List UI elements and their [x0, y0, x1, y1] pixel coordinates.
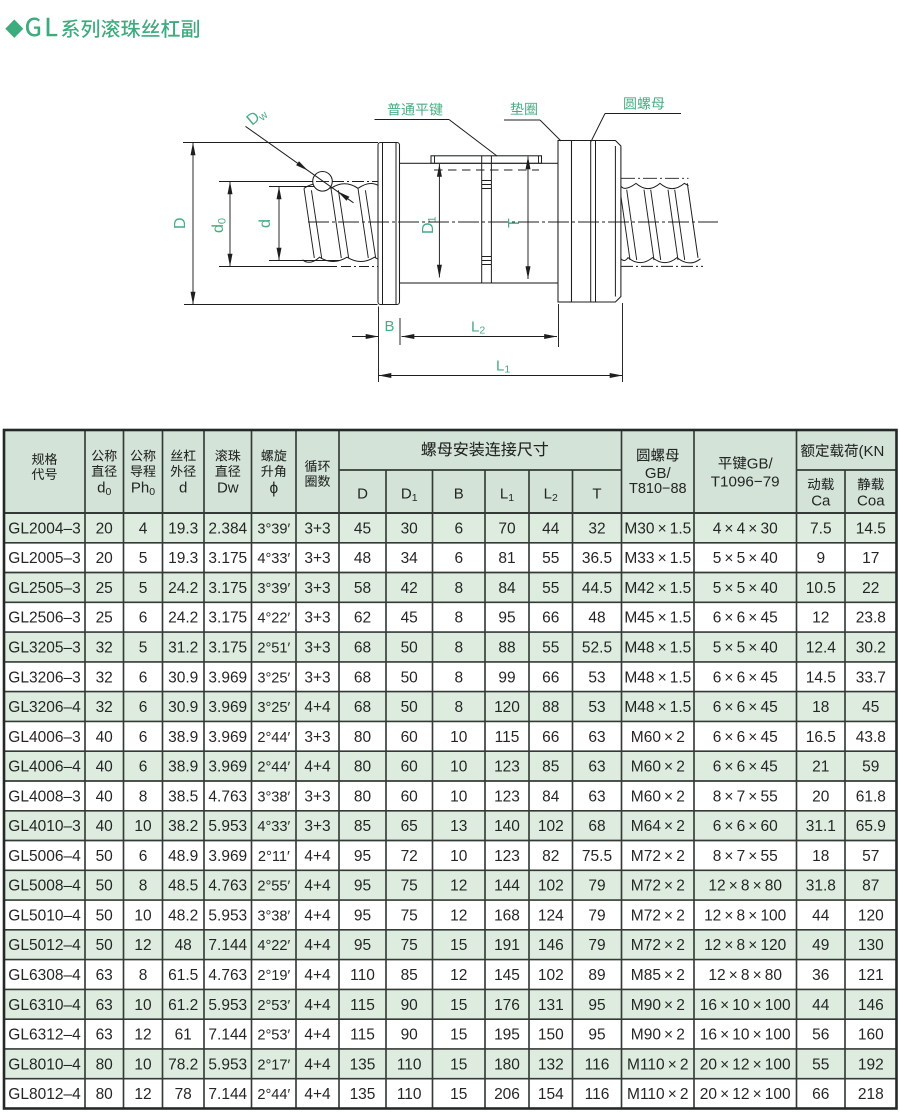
svg-text:12: 12: [450, 908, 467, 925]
svg-text:5 × 5 × 40: 5 × 5 × 40: [713, 550, 778, 567]
svg-text:30.9: 30.9: [168, 699, 198, 716]
svg-text:52.5: 52.5: [582, 640, 612, 657]
svg-text:48.9: 48.9: [168, 848, 198, 865]
svg-text:102: 102: [538, 967, 564, 984]
svg-text:4+4: 4+4: [304, 878, 331, 895]
svg-text:95: 95: [588, 997, 605, 1014]
svg-text:Dw: Dw: [217, 479, 239, 496]
svg-text:12: 12: [134, 937, 151, 954]
svg-text:90: 90: [401, 1027, 419, 1044]
svg-text:84: 84: [542, 788, 560, 805]
svg-text:10: 10: [450, 848, 468, 865]
svg-text:3.175: 3.175: [208, 580, 247, 597]
svg-text:2°19′: 2°19′: [257, 968, 290, 984]
svg-text:4+4: 4+4: [304, 1086, 331, 1103]
svg-text:2°44′: 2°44′: [257, 730, 290, 746]
svg-text:M48 × 1.5: M48 × 1.5: [624, 669, 691, 686]
svg-text:19.3: 19.3: [168, 550, 198, 567]
svg-text:25: 25: [96, 610, 113, 627]
svg-text:3°38′: 3°38′: [257, 789, 290, 805]
svg-text:20: 20: [812, 788, 830, 805]
svg-text:3+3: 3+3: [304, 580, 330, 597]
svg-text:44.5: 44.5: [582, 580, 612, 597]
svg-text:33.7: 33.7: [856, 669, 886, 686]
svg-text:144: 144: [494, 878, 520, 895]
svg-text:80: 80: [354, 788, 372, 805]
svg-text:145: 145: [494, 967, 520, 984]
svg-text:38.2: 38.2: [168, 818, 198, 835]
svg-text:17: 17: [862, 550, 879, 567]
svg-text:D: D: [172, 217, 189, 229]
svg-text:8: 8: [139, 788, 148, 805]
svg-text:20: 20: [96, 550, 114, 567]
svg-text:8: 8: [454, 610, 463, 627]
svg-text:140: 140: [494, 818, 520, 835]
svg-text:31.8: 31.8: [806, 878, 836, 895]
svg-text:4+4: 4+4: [304, 908, 331, 925]
svg-text:66: 66: [812, 1086, 829, 1103]
svg-text:68: 68: [354, 699, 371, 716]
svg-text:168: 168: [494, 908, 520, 925]
svg-text:120: 120: [858, 908, 884, 925]
svg-text:116: 116: [585, 1086, 610, 1103]
svg-text:15: 15: [450, 1056, 467, 1073]
svg-text:GL5006–4: GL5006–4: [8, 848, 81, 865]
svg-text:45: 45: [401, 610, 418, 627]
svg-text:6: 6: [454, 520, 463, 537]
svg-text:206: 206: [494, 1086, 520, 1103]
svg-text:M45 × 1.5: M45 × 1.5: [624, 610, 691, 627]
svg-text:79: 79: [588, 908, 605, 925]
svg-text:102: 102: [538, 818, 564, 835]
svg-text:38.9: 38.9: [168, 759, 198, 776]
svg-text:30: 30: [401, 520, 419, 537]
svg-text:M60 × 2: M60 × 2: [631, 759, 685, 776]
svg-text:GL4010–3: GL4010–3: [8, 818, 80, 835]
svg-text:53: 53: [588, 699, 605, 716]
svg-text:M42 × 1.5: M42 × 1.5: [624, 580, 691, 597]
svg-text:(KN: (KN: [859, 443, 885, 460]
svg-text:68: 68: [588, 818, 605, 835]
svg-text:40: 40: [96, 759, 114, 776]
svg-text:13: 13: [450, 818, 467, 835]
svg-text:GL4008–3: GL4008–3: [8, 788, 80, 805]
svg-text:60: 60: [401, 759, 419, 776]
svg-text:Coa: Coa: [857, 492, 885, 509]
svg-text:61.2: 61.2: [168, 997, 198, 1014]
svg-text:2.384: 2.384: [208, 520, 247, 537]
svg-text:3+3: 3+3: [304, 788, 330, 805]
svg-text:4°33′: 4°33′: [257, 819, 290, 835]
svg-text:123: 123: [494, 848, 520, 865]
svg-text:61.5: 61.5: [168, 967, 198, 984]
svg-text:GL5012–4: GL5012–4: [8, 937, 81, 954]
svg-text:84: 84: [498, 580, 516, 597]
svg-text:85: 85: [354, 818, 371, 835]
svg-text:132: 132: [538, 1056, 564, 1073]
svg-text:T: T: [506, 218, 523, 228]
svg-text:44: 44: [812, 997, 830, 1014]
svg-text:81: 81: [498, 550, 515, 567]
svg-text:123: 123: [494, 788, 520, 805]
svg-text:120: 120: [494, 699, 520, 716]
svg-text:M90 × 2: M90 × 2: [631, 997, 685, 1014]
svg-text:48.5: 48.5: [168, 878, 198, 895]
svg-text:4 × 4 × 30: 4 × 4 × 30: [713, 520, 778, 537]
svg-text:75: 75: [401, 908, 418, 925]
svg-text:12: 12: [812, 610, 829, 627]
svg-text:36: 36: [812, 967, 829, 984]
svg-text:M48 × 1.5: M48 × 1.5: [624, 640, 691, 657]
svg-text:79: 79: [588, 937, 605, 954]
svg-text:15: 15: [450, 1086, 467, 1103]
svg-text:GL4006–4: GL4006–4: [8, 759, 81, 776]
svg-text:M33 × 1.5: M33 × 1.5: [624, 550, 691, 567]
svg-text:43.8: 43.8: [856, 729, 886, 746]
svg-text:20 × 12 × 100: 20 × 12 × 100: [700, 1056, 791, 1073]
svg-text:38.9: 38.9: [168, 729, 198, 746]
svg-text:5.953: 5.953: [208, 1056, 247, 1073]
svg-text:GL2505–3: GL2505–3: [8, 580, 80, 597]
svg-text:31.2: 31.2: [168, 640, 198, 657]
svg-text:7.144: 7.144: [208, 1086, 247, 1103]
svg-text:3.175: 3.175: [208, 640, 247, 657]
svg-text:8: 8: [139, 878, 148, 895]
svg-text:90: 90: [401, 997, 419, 1014]
svg-text:12: 12: [450, 878, 467, 895]
svg-text:75: 75: [401, 878, 418, 895]
svg-text:154: 154: [538, 1086, 564, 1103]
svg-text:3°39′: 3°39′: [257, 581, 290, 597]
svg-text:99: 99: [498, 669, 515, 686]
svg-text:GL6310–4: GL6310–4: [8, 997, 81, 1014]
svg-text:32: 32: [96, 669, 113, 686]
svg-text:15: 15: [450, 937, 467, 954]
svg-text:4+4: 4+4: [304, 699, 331, 716]
svg-text:63: 63: [588, 788, 605, 805]
svg-text:9: 9: [816, 550, 825, 567]
svg-text:M85 × 2: M85 × 2: [631, 967, 685, 984]
svg-text:6: 6: [139, 699, 148, 716]
svg-text:GL2005–3: GL2005–3: [8, 550, 80, 567]
svg-text:6 × 6 × 60: 6 × 6 × 60: [713, 818, 778, 835]
svg-text:115: 115: [350, 1027, 375, 1044]
svg-text:M72 × 2: M72 × 2: [631, 937, 685, 954]
svg-text:15: 15: [450, 997, 467, 1014]
svg-text:4°33′: 4°33′: [257, 551, 290, 567]
svg-text:49: 49: [812, 937, 829, 954]
svg-text:131: 131: [538, 997, 564, 1014]
svg-text:6 × 6 × 45: 6 × 6 × 45: [713, 699, 778, 716]
svg-text:4°22′: 4°22′: [257, 938, 290, 954]
svg-text:66: 66: [542, 669, 559, 686]
svg-text:6 × 6 × 45: 6 × 6 × 45: [713, 729, 778, 746]
svg-text:2°53′: 2°53′: [257, 1028, 290, 1044]
svg-text:68: 68: [354, 640, 371, 657]
svg-text:56: 56: [812, 1027, 829, 1044]
svg-text:8: 8: [139, 967, 148, 984]
svg-text:44: 44: [542, 520, 560, 537]
svg-text:32: 32: [96, 699, 113, 716]
svg-text:95: 95: [354, 908, 371, 925]
svg-text:95: 95: [354, 937, 371, 954]
svg-text:146: 146: [858, 997, 884, 1014]
svg-text:89: 89: [588, 967, 605, 984]
svg-text:180: 180: [494, 1056, 520, 1073]
svg-text:GL3205–3: GL3205–3: [8, 640, 80, 657]
svg-text:66: 66: [542, 729, 559, 746]
svg-text:25: 25: [96, 580, 113, 597]
svg-text:80: 80: [354, 729, 372, 746]
svg-text:20: 20: [96, 520, 114, 537]
svg-text:6 × 6 × 45: 6 × 6 × 45: [713, 610, 778, 627]
svg-text:10: 10: [134, 818, 152, 835]
svg-text:3+3: 3+3: [304, 610, 330, 627]
svg-text:7.144: 7.144: [208, 937, 247, 954]
svg-text:3°38′: 3°38′: [257, 909, 290, 925]
svg-text:3+3: 3+3: [304, 669, 330, 686]
svg-text:40: 40: [96, 729, 114, 746]
svg-text:23.8: 23.8: [856, 610, 886, 627]
svg-text:M72 × 2: M72 × 2: [631, 908, 685, 925]
svg-text:4+4: 4+4: [304, 1056, 331, 1073]
svg-text:88: 88: [542, 699, 559, 716]
svg-text:14.5: 14.5: [806, 669, 836, 686]
svg-text:62: 62: [354, 610, 371, 627]
svg-text:5: 5: [139, 550, 148, 567]
svg-text:T1096−79: T1096−79: [711, 473, 780, 490]
svg-text:GL4006–3: GL4006–3: [8, 729, 80, 746]
svg-text:M110 × 2: M110 × 2: [627, 1056, 689, 1073]
svg-text:3.969: 3.969: [208, 848, 247, 865]
svg-text:5.953: 5.953: [208, 818, 247, 835]
svg-text:4: 4: [139, 520, 148, 537]
svg-text:4+4: 4+4: [304, 1027, 331, 1044]
svg-text:10: 10: [450, 788, 468, 805]
svg-text:82: 82: [542, 848, 559, 865]
svg-text:72: 72: [401, 848, 418, 865]
svg-text:2°53′: 2°53′: [257, 998, 290, 1014]
svg-text:3+3: 3+3: [304, 818, 330, 835]
svg-text:79: 79: [588, 878, 605, 895]
svg-text:6 × 6 × 45: 6 × 6 × 45: [713, 759, 778, 776]
svg-text:3.969: 3.969: [208, 759, 247, 776]
svg-text:75.5: 75.5: [582, 848, 612, 865]
svg-text:40: 40: [96, 818, 114, 835]
svg-text:3+3: 3+3: [304, 520, 330, 537]
svg-text:d: d: [257, 219, 274, 228]
svg-text:78: 78: [175, 1086, 192, 1103]
svg-text:78.2: 78.2: [168, 1056, 198, 1073]
svg-text:4°22′: 4°22′: [257, 611, 290, 627]
svg-text:8: 8: [454, 699, 463, 716]
svg-text:44: 44: [812, 908, 830, 925]
svg-text:3°39′: 3°39′: [257, 521, 290, 537]
svg-text:34: 34: [401, 550, 419, 567]
svg-text:42: 42: [401, 580, 418, 597]
svg-text:176: 176: [494, 997, 520, 1014]
svg-text:M64 × 2: M64 × 2: [631, 818, 685, 835]
svg-text:63: 63: [96, 1027, 113, 1044]
svg-text:12.4: 12.4: [806, 640, 837, 657]
svg-text:24.2: 24.2: [168, 580, 198, 597]
svg-text:22: 22: [862, 580, 879, 597]
svg-text:102: 102: [538, 878, 564, 895]
svg-text:3+3: 3+3: [304, 550, 330, 567]
svg-text:6: 6: [139, 729, 148, 746]
svg-text:192: 192: [858, 1056, 884, 1073]
svg-text:48: 48: [175, 937, 192, 954]
svg-text:GB/: GB/: [645, 465, 672, 482]
svg-text:B: B: [384, 318, 394, 335]
svg-text:2°44′: 2°44′: [257, 1087, 290, 1103]
svg-text:D: D: [357, 485, 368, 502]
svg-text:32: 32: [588, 520, 605, 537]
svg-text:16 × 10 × 100: 16 × 10 × 100: [700, 1027, 791, 1044]
svg-text:55: 55: [542, 580, 559, 597]
svg-text:68: 68: [354, 669, 371, 686]
svg-text:12 × 8 × 80: 12 × 8 × 80: [708, 878, 782, 895]
svg-text:50: 50: [96, 908, 114, 925]
svg-text:8: 8: [454, 580, 463, 597]
svg-text:66: 66: [542, 610, 559, 627]
svg-text:30.2: 30.2: [856, 640, 886, 657]
svg-text:B: B: [454, 485, 464, 502]
svg-text:50: 50: [96, 848, 114, 865]
svg-text:GB/: GB/: [747, 455, 774, 472]
svg-text:8: 8: [454, 669, 463, 686]
svg-text:21: 21: [812, 759, 829, 776]
svg-text:48: 48: [588, 610, 605, 627]
svg-text:GL2004–3: GL2004–3: [8, 520, 80, 537]
svg-text:191: 191: [494, 937, 520, 954]
svg-text:61.8: 61.8: [856, 788, 886, 805]
svg-text:95: 95: [354, 878, 371, 895]
svg-text:80: 80: [354, 759, 372, 776]
svg-text:7.5: 7.5: [810, 520, 832, 537]
svg-text:GL8012–4: GL8012–4: [8, 1086, 81, 1103]
svg-text:45: 45: [354, 520, 371, 537]
svg-text:10: 10: [134, 1056, 152, 1073]
svg-text:M48 × 1.5: M48 × 1.5: [624, 699, 691, 716]
svg-text:GL3206–4: GL3206–4: [8, 699, 81, 716]
svg-text:115: 115: [350, 997, 375, 1014]
svg-text:57: 57: [862, 848, 879, 865]
svg-text:6 × 6 × 45: 6 × 6 × 45: [713, 669, 778, 686]
svg-text:GL5008–4: GL5008–4: [8, 878, 81, 895]
svg-text:110: 110: [397, 1086, 422, 1103]
svg-text:8: 8: [454, 640, 463, 657]
svg-text:3°25′: 3°25′: [257, 670, 290, 686]
svg-text:110: 110: [397, 1056, 422, 1073]
svg-text:130: 130: [858, 937, 884, 954]
svg-text:38.5: 38.5: [168, 788, 198, 805]
svg-text:GL5010–4: GL5010–4: [8, 908, 81, 925]
svg-text:5.953: 5.953: [208, 997, 247, 1014]
svg-text:195: 195: [494, 1027, 520, 1044]
svg-text:M110 × 2: M110 × 2: [627, 1086, 689, 1103]
svg-text:2°44′: 2°44′: [257, 760, 290, 776]
svg-text:10: 10: [134, 908, 152, 925]
svg-text:M60 × 2: M60 × 2: [631, 788, 685, 805]
svg-text:30.9: 30.9: [168, 669, 198, 686]
svg-text:59: 59: [862, 759, 879, 776]
svg-text:4+4: 4+4: [304, 848, 331, 865]
svg-text:12: 12: [134, 1027, 151, 1044]
svg-text:M72 × 2: M72 × 2: [631, 848, 685, 865]
svg-text:61: 61: [175, 1027, 192, 1044]
svg-text:95: 95: [498, 610, 515, 627]
svg-text:4+4: 4+4: [304, 759, 331, 776]
svg-text:6: 6: [139, 759, 148, 776]
svg-text:19.3: 19.3: [168, 520, 198, 537]
svg-text:135: 135: [350, 1086, 376, 1103]
svg-text:6: 6: [139, 669, 148, 686]
svg-text:55: 55: [812, 1056, 829, 1073]
svg-text:GL8010–4: GL8010–4: [8, 1056, 81, 1073]
svg-text:48.2: 48.2: [168, 908, 198, 925]
svg-text:12: 12: [450, 967, 467, 984]
svg-text:50: 50: [401, 699, 419, 716]
svg-text:110: 110: [350, 967, 375, 984]
svg-text:10.5: 10.5: [806, 580, 836, 597]
svg-text:2°17′: 2°17′: [257, 1057, 290, 1073]
svg-text:10: 10: [450, 759, 468, 776]
svg-text:32: 32: [96, 640, 113, 657]
svg-text:3.969: 3.969: [208, 699, 247, 716]
svg-text:15: 15: [450, 1027, 467, 1044]
svg-text:4.763: 4.763: [208, 788, 247, 805]
svg-text:50: 50: [401, 640, 419, 657]
svg-text:87: 87: [862, 878, 879, 895]
svg-text:M72 × 2: M72 × 2: [631, 878, 685, 895]
svg-text:4.763: 4.763: [208, 878, 247, 895]
svg-text:4.763: 4.763: [208, 967, 247, 984]
svg-text:6: 6: [454, 550, 463, 567]
svg-text:63: 63: [96, 997, 113, 1014]
svg-text:70: 70: [498, 520, 516, 537]
svg-text:4+4: 4+4: [304, 997, 331, 1014]
svg-text:3+3: 3+3: [304, 640, 330, 657]
svg-text:150: 150: [538, 1027, 564, 1044]
svg-text:65: 65: [401, 818, 418, 835]
svg-text:T: T: [592, 485, 601, 502]
svg-text:GL6312–4: GL6312–4: [8, 1027, 81, 1044]
svg-text:12 × 8 × 120: 12 × 8 × 120: [704, 937, 787, 954]
svg-text:6: 6: [139, 848, 148, 865]
svg-text:50: 50: [401, 669, 419, 686]
svg-text:3.969: 3.969: [208, 729, 247, 746]
svg-text:5: 5: [139, 580, 148, 597]
svg-text:160: 160: [858, 1027, 884, 1044]
svg-text:24.2: 24.2: [168, 610, 198, 627]
svg-text:5: 5: [139, 640, 148, 657]
svg-text:12: 12: [134, 1086, 151, 1103]
svg-text:GL3206–3: GL3206–3: [8, 669, 80, 686]
svg-text:10: 10: [134, 997, 152, 1014]
svg-text:3.175: 3.175: [208, 610, 247, 627]
svg-text:18: 18: [812, 848, 829, 865]
svg-text:63: 63: [588, 759, 605, 776]
svg-text:95: 95: [354, 848, 371, 865]
svg-text:5 × 5 × 40: 5 × 5 × 40: [713, 640, 778, 657]
svg-text:60: 60: [401, 788, 419, 805]
svg-text:3.969: 3.969: [208, 669, 247, 686]
svg-text:85: 85: [542, 759, 559, 776]
svg-text:146: 146: [538, 937, 564, 954]
svg-text:121: 121: [858, 967, 884, 984]
svg-text:50: 50: [96, 937, 114, 954]
